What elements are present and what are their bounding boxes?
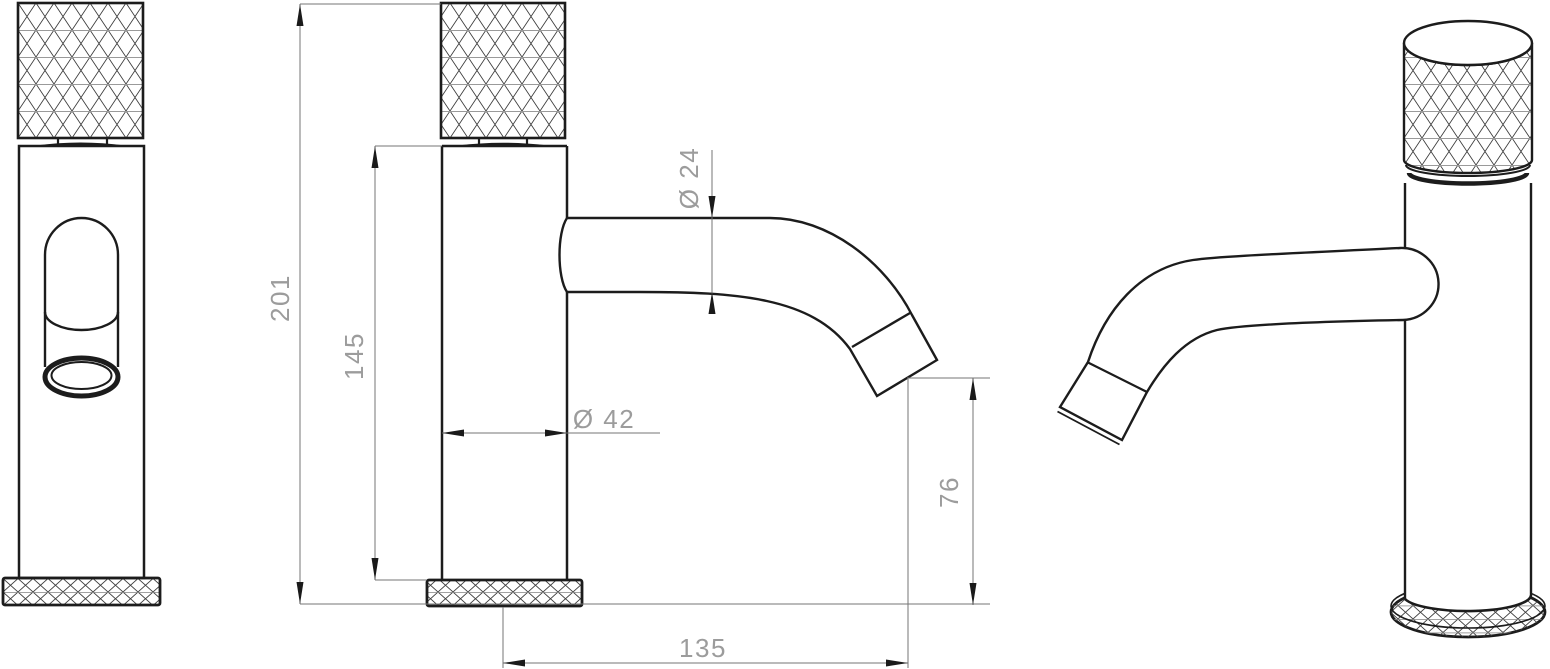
front-base-ring <box>3 578 160 605</box>
label-outlet-height: 76 <box>934 476 964 508</box>
persp-collar-lower <box>1409 173 1527 184</box>
label-spout-reach: 135 <box>679 633 727 663</box>
side-knurled-handle <box>441 3 565 138</box>
faucet-technical-drawing: 201 145 Ø 24 Ø 42 76 135 <box>0 0 1550 669</box>
label-overall-height: 201 <box>265 274 295 322</box>
perspective-view <box>1058 21 1546 637</box>
front-knurled-handle <box>18 3 143 138</box>
arrow-dia24-top <box>709 196 716 218</box>
side-base-ring <box>427 580 582 606</box>
side-body-fill <box>442 146 567 580</box>
side-view <box>427 3 937 606</box>
arrow-145-top <box>372 146 379 168</box>
persp-body-fill <box>1405 183 1531 611</box>
arrow-76-top <box>970 378 977 400</box>
front-view <box>3 3 160 605</box>
label-spout-height: 145 <box>339 332 369 380</box>
object-outlines <box>3 3 1545 637</box>
persp-handle-top <box>1404 21 1532 65</box>
label-body-diameter: Ø 42 <box>573 404 635 434</box>
front-spout-silhouette <box>45 218 118 367</box>
arrow-76-bottom <box>970 583 977 605</box>
side-spout <box>560 218 938 396</box>
arrow-145-bottom <box>372 558 379 580</box>
technical-drawing-page: 201 145 Ø 24 Ø 42 76 135 <box>0 0 1550 669</box>
front-outlet-rim <box>45 358 118 396</box>
arrow-135-right <box>886 660 908 667</box>
arrow-201-bottom <box>297 582 304 604</box>
label-spout-diameter: Ø 24 <box>674 147 704 209</box>
arrow-201-top <box>297 4 304 26</box>
arrow-dia24-bottom <box>709 292 716 314</box>
persp-spout <box>1060 248 1439 440</box>
arrow-135-left <box>503 660 525 667</box>
